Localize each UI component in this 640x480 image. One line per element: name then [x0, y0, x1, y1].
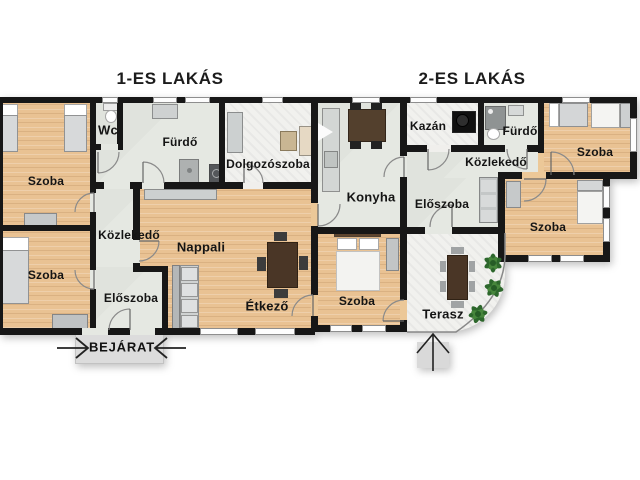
room-label-eloszoba1: Előszoba — [104, 291, 158, 305]
room-label-dolgozoszoba: Dolgozószoba — [226, 157, 310, 171]
room-label-szoba-top-right: Szoba — [577, 145, 613, 159]
room-label-konyha: Konyha — [347, 190, 396, 205]
apartment1-title: 1-ES LAKÁS — [116, 69, 223, 89]
room-label-szoba-bottom-mid: Szoba — [339, 294, 375, 308]
room-label-furdo2: Fürdő — [503, 124, 538, 138]
room-label-wc: Wc — [98, 123, 118, 138]
room-label-eloszoba2: Előszoba — [415, 197, 469, 211]
room-label-nappali: Nappali — [177, 240, 225, 255]
room-label-etkezo: Étkező — [245, 299, 288, 314]
apartment2-title: 2-ES LAKÁS — [418, 69, 525, 89]
room-label-kozlekedo1: Közlekedő — [98, 228, 160, 242]
floor-plan-canvas: 1-ES LAKÁS 2-ES LAKÁS Szoba Wc Fürdő Dol… — [0, 0, 640, 480]
room-label-szoba-top-left: Szoba — [28, 174, 64, 188]
room-label-szoba-mid-right: Szoba — [530, 220, 566, 234]
plan-labels: 1-ES LAKÁS 2-ES LAKÁS Szoba Wc Fürdő Dol… — [0, 0, 640, 480]
room-label-terasz: Terasz — [422, 307, 463, 322]
room-label-kazan: Kazán — [410, 119, 446, 133]
entrance-label: BEJÁRAT — [89, 340, 155, 355]
room-label-kozlekedo2: Közlekedő — [465, 155, 527, 169]
room-label-szoba-bottom-left: Szoba — [28, 268, 64, 282]
room-label-furdo1: Fürdő — [163, 135, 198, 149]
